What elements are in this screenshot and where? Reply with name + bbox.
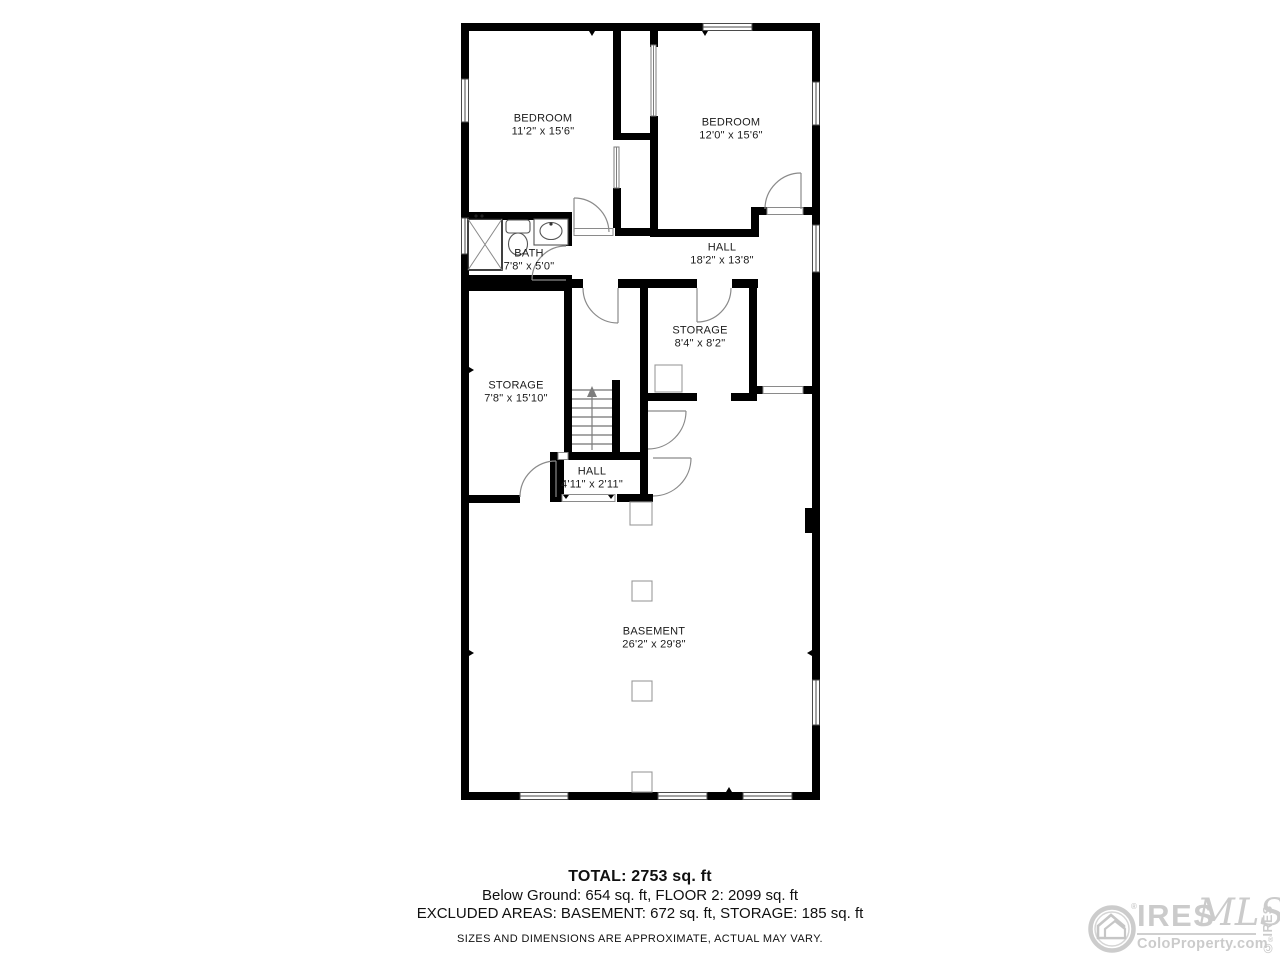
copyright-vertical: © IRES <box>1261 901 1275 955</box>
dimension-ticks <box>432 31 812 792</box>
room-dims: 11'2" x 15'6" <box>512 125 575 138</box>
room-name: HALL <box>690 242 754 255</box>
room-label-bedroom-left: BEDROOM 11'2" x 15'6" <box>512 113 575 138</box>
room-dims: 12'0" x 15'6" <box>699 129 763 142</box>
post <box>655 365 682 392</box>
door-arc-icon <box>648 411 686 449</box>
coloproperty-text: ColoProperty.com® <box>1137 936 1274 952</box>
room-dims: 26'2" x 29'8" <box>622 638 686 651</box>
window-icon <box>813 225 820 272</box>
room-name: BASEMENT <box>622 626 686 639</box>
window-icon <box>813 680 820 725</box>
logo-divider <box>1137 933 1256 935</box>
room-name: HALL <box>561 466 623 479</box>
room-dims: 4'11" x 2'11" <box>561 478 623 491</box>
door-arc-icon <box>765 173 801 209</box>
room-dims: 7'8" x 5'0" <box>504 260 555 273</box>
room-label-bedroom-right: BEDROOM 12'0" x 15'6" <box>699 117 763 142</box>
sink-icon <box>534 219 568 245</box>
ires-logo: ® IRES MLS ColoProperty.com® © IRES <box>1085 897 1280 959</box>
sliding-door-icon <box>614 147 619 188</box>
door-arc-icon <box>583 288 618 323</box>
room-name: BATH <box>504 248 555 261</box>
room-name: STORAGE <box>672 325 727 338</box>
floor-plan-drawing <box>0 0 1280 960</box>
window-icon <box>703 24 752 31</box>
room-label-hall-upper: HALL 18'2" x 13'8" <box>690 242 754 267</box>
room-dims: 18'2" x 13'8" <box>690 254 754 267</box>
door-arc-icon <box>697 288 731 322</box>
door-arc-icon <box>653 458 691 496</box>
room-label-hall-lower: HALL 4'11" x 2'11" <box>561 466 623 491</box>
shower-icon <box>468 214 502 270</box>
site-name: ColoProperty.com <box>1137 936 1268 952</box>
room-label-basement: BASEMENT 26'2" x 29'8" <box>622 626 686 651</box>
post <box>632 581 652 601</box>
post <box>632 772 652 792</box>
total-area: TOTAL: 2753 sq. ft <box>0 868 1280 886</box>
house-icon <box>1087 904 1137 954</box>
sliding-door-icon <box>651 45 656 116</box>
window-icon <box>520 793 568 800</box>
room-label-storage-small: STORAGE 8'4" x 8'2" <box>672 325 727 350</box>
room-dims: 7'8" x 15'10" <box>484 392 548 405</box>
room-name: STORAGE <box>484 380 548 393</box>
room-dims: 8'4" x 8'2" <box>672 337 727 350</box>
window-icon <box>743 793 792 800</box>
floor-plan-page: BEDROOM 11'2" x 15'6" BEDROOM 12'0" x 15… <box>0 0 1280 960</box>
window-icon <box>658 793 707 800</box>
room-name: BEDROOM <box>699 117 763 130</box>
door-arc-icon <box>574 198 609 232</box>
support-posts <box>630 365 682 792</box>
room-label-storage-large: STORAGE 7'8" x 15'10" <box>484 380 548 405</box>
post <box>630 502 652 525</box>
room-label-bath: BATH 7'8" x 5'0" <box>504 248 555 273</box>
room-name: BEDROOM <box>512 113 575 126</box>
window-icon <box>462 79 469 122</box>
post <box>632 681 652 701</box>
up-arrow-icon <box>587 386 597 450</box>
stairs <box>572 386 612 450</box>
chimney <box>805 508 813 533</box>
window-icon <box>813 82 820 125</box>
